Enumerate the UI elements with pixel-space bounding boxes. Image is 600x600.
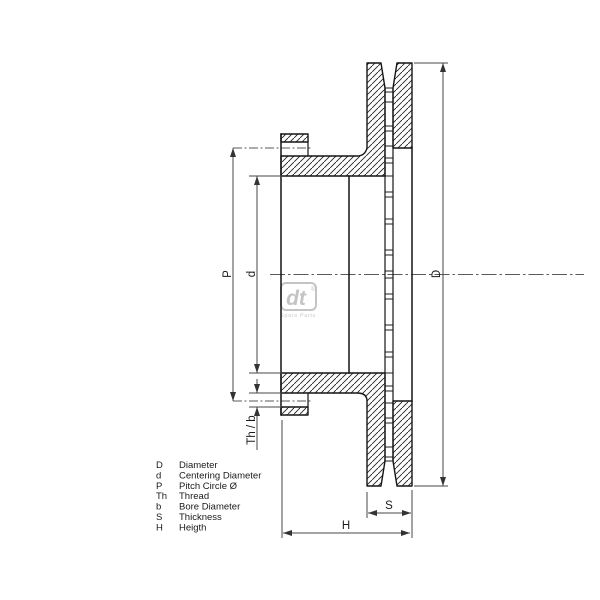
dt-logo: dt ® Spare Parts xyxy=(280,283,316,319)
dimension-thread-bore: Th / b xyxy=(246,379,282,450)
legend-symbol: b xyxy=(156,502,161,513)
top-bolt-boss-section xyxy=(281,134,308,142)
bottom-bolt-boss-section xyxy=(281,407,308,415)
center-lines xyxy=(233,148,584,401)
label-H: H xyxy=(342,520,350,532)
legend-symbol: S xyxy=(156,512,162,523)
legend-description: Bore Diameter xyxy=(179,502,240,513)
legend-symbol: P xyxy=(156,481,162,492)
dt-logo-subtext: Spare Parts xyxy=(280,313,316,319)
label-P: P xyxy=(222,270,234,278)
legend-description: Heigth xyxy=(179,522,206,533)
label-D: D xyxy=(431,270,443,278)
brake-disc-technical-drawing: dt ® Spare Parts D P xyxy=(0,0,600,600)
dimension-pitch-circle: P xyxy=(222,148,234,401)
legend-description: Thickness xyxy=(179,512,222,523)
legend-symbol: H xyxy=(156,522,163,533)
legend-description: Pitch Circle Ø xyxy=(179,481,238,492)
legend-symbol: D xyxy=(156,460,163,471)
legend-description: Thread xyxy=(179,491,209,502)
upper-outboard-plate-section xyxy=(393,63,412,148)
dt-logo-text: dt xyxy=(286,287,307,310)
legend-symbol: d xyxy=(156,470,161,481)
upper-hub-flange-and-inboard-plate-section xyxy=(281,63,385,176)
legend-symbol: Th xyxy=(156,491,167,502)
label-Th-b: Th / b xyxy=(246,415,258,444)
dimension-height: H xyxy=(282,420,410,538)
legend: D Diameter d Centering Diameter P Pitch … xyxy=(156,460,261,533)
legend-description: Centering Diameter xyxy=(179,470,261,481)
drawing-canvas: dt ® Spare Parts D P xyxy=(0,0,600,600)
label-S: S xyxy=(385,500,393,512)
lower-outboard-plate-section xyxy=(393,401,412,486)
dimension-thickness: S xyxy=(367,490,412,538)
registered-trademark-icon: ® xyxy=(311,285,316,293)
lower-hub-flange-and-inboard-plate-section xyxy=(281,373,385,486)
legend-description: Diameter xyxy=(179,460,218,471)
label-d: d xyxy=(246,271,258,277)
